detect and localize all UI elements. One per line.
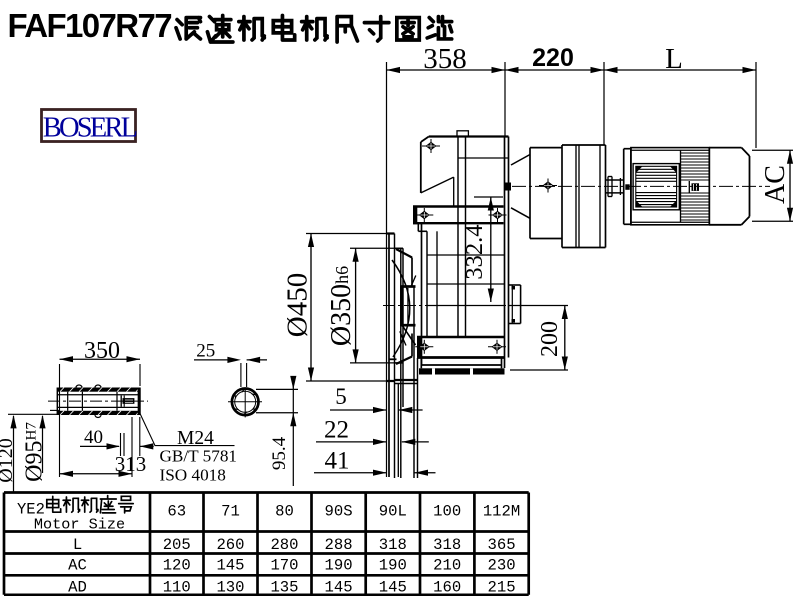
svg-text:318: 318 — [379, 536, 407, 554]
svg-text:71: 71 — [221, 503, 240, 521]
svg-text:63: 63 — [167, 503, 186, 521]
svg-text:110: 110 — [163, 578, 191, 596]
svg-text:220: 220 — [532, 44, 574, 72]
svg-text:145: 145 — [379, 578, 407, 596]
svg-text:112M: 112M — [483, 503, 520, 521]
svg-text:100: 100 — [433, 503, 461, 521]
svg-text:AD: AD — [68, 578, 87, 596]
svg-text:205: 205 — [163, 536, 191, 554]
svg-text:358: 358 — [423, 43, 467, 75]
svg-text:Ø120: Ø120 — [0, 438, 17, 482]
svg-text:FAF107R77: FAF107R77 — [8, 7, 172, 44]
svg-text:280: 280 — [270, 536, 298, 554]
svg-text:200: 200 — [537, 321, 563, 357]
svg-text:170: 170 — [270, 557, 298, 575]
svg-text:5: 5 — [335, 384, 347, 409]
svg-text:288: 288 — [325, 536, 353, 554]
svg-text:190: 190 — [325, 557, 353, 575]
svg-text:41: 41 — [325, 448, 350, 475]
svg-text:365: 365 — [488, 536, 516, 554]
svg-text:22: 22 — [324, 417, 349, 444]
svg-text:AC: AC — [760, 165, 791, 204]
svg-text:350: 350 — [84, 338, 120, 364]
svg-text:135: 135 — [270, 578, 298, 596]
svg-text:120: 120 — [163, 557, 191, 575]
svg-text:L: L — [665, 43, 683, 75]
svg-text:215: 215 — [488, 578, 516, 596]
svg-text:145: 145 — [216, 557, 244, 575]
svg-text:80: 80 — [275, 503, 294, 521]
svg-text:230: 230 — [488, 557, 516, 575]
svg-text:BOSERL: BOSERL — [43, 113, 137, 144]
svg-text:318: 318 — [433, 536, 461, 554]
svg-text:40: 40 — [84, 427, 103, 448]
svg-text:L: L — [73, 536, 82, 554]
svg-text:Ø450: Ø450 — [282, 273, 314, 337]
svg-text:90L: 90L — [379, 503, 407, 521]
svg-text:AC: AC — [68, 557, 87, 575]
svg-text:210: 210 — [433, 557, 461, 575]
svg-text:332.4: 332.4 — [461, 224, 488, 279]
svg-text:190: 190 — [379, 557, 407, 575]
svg-text:145: 145 — [325, 578, 353, 596]
svg-text:260: 260 — [216, 536, 244, 554]
svg-text:ISO 4018: ISO 4018 — [160, 466, 226, 485]
svg-text:90S: 90S — [325, 503, 353, 521]
svg-text:GB/T 5781: GB/T 5781 — [160, 447, 238, 466]
svg-text:25: 25 — [196, 341, 215, 362]
svg-text:160: 160 — [433, 578, 461, 596]
svg-text:95.4: 95.4 — [269, 436, 290, 470]
svg-text:Motor Size: Motor Size — [34, 516, 125, 534]
svg-text:130: 130 — [216, 578, 244, 596]
svg-text:313: 313 — [115, 452, 147, 476]
